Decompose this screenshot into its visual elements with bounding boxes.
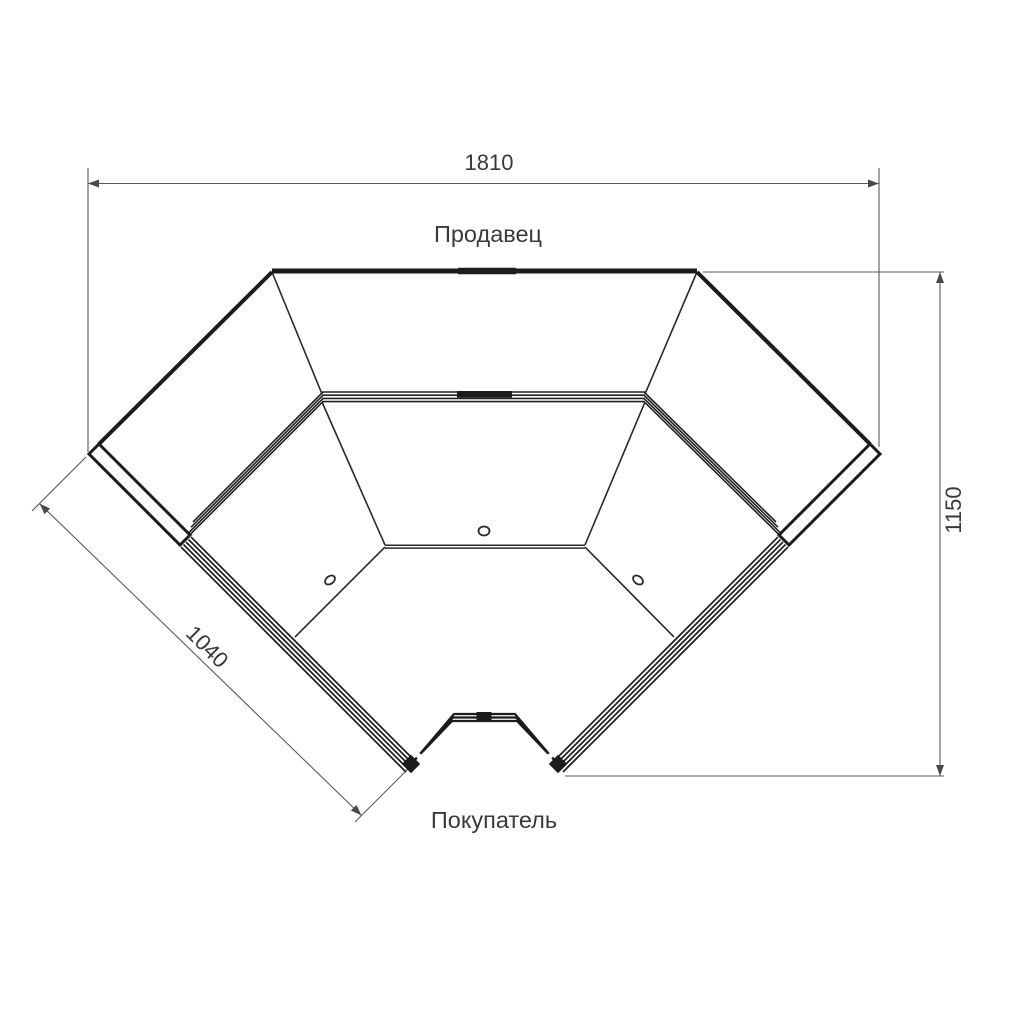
shelf-center-joint bbox=[457, 391, 512, 398]
left-end-panel bbox=[89, 444, 190, 545]
arrow-bottom bbox=[936, 765, 944, 776]
arrow-top bbox=[936, 272, 944, 283]
seller-side-label: Продавец bbox=[434, 221, 542, 247]
inner-well-lines bbox=[272, 272, 697, 637]
left-back-diagonal bbox=[99, 272, 272, 444]
left-hole bbox=[323, 574, 336, 587]
right-back-diagonal bbox=[697, 272, 870, 444]
right-hole bbox=[631, 574, 644, 587]
front-notch bbox=[408, 712, 561, 767]
right-joint-pin bbox=[547, 753, 553, 759]
arrow-right bbox=[868, 180, 879, 188]
notch-corner-joints bbox=[402, 753, 567, 773]
extension-line-upper bbox=[32, 457, 86, 511]
fitting-holes bbox=[323, 527, 644, 587]
rear-shelf-band bbox=[322, 391, 645, 402]
right-shelf-band bbox=[644, 392, 782, 538]
buyer-side-label: Покупатель bbox=[431, 807, 557, 833]
arrow-left bbox=[88, 180, 99, 188]
left-shelf-band bbox=[187, 392, 323, 538]
dimension-depth-value: 1150 bbox=[941, 486, 966, 533]
center-hole bbox=[479, 527, 490, 536]
counter-outline bbox=[89, 271, 880, 545]
dimension-front-value: 1040 bbox=[181, 621, 233, 673]
right-end-panel bbox=[779, 444, 880, 545]
corner-counter-drawing: 1810 1150 1040 bbox=[0, 0, 1024, 1024]
right-glass-front-band bbox=[553, 537, 788, 772]
technical-drawing-page: 1810 1150 1040 bbox=[0, 0, 1024, 1024]
left-joint-pin bbox=[416, 753, 422, 759]
extension-line-lower bbox=[355, 769, 408, 822]
dimension-width-value: 1810 bbox=[465, 150, 514, 175]
dimension-overall-width: 1810 bbox=[88, 150, 879, 452]
dimension-front-section: 1040 bbox=[32, 457, 408, 822]
notch-center-lock bbox=[477, 712, 492, 722]
